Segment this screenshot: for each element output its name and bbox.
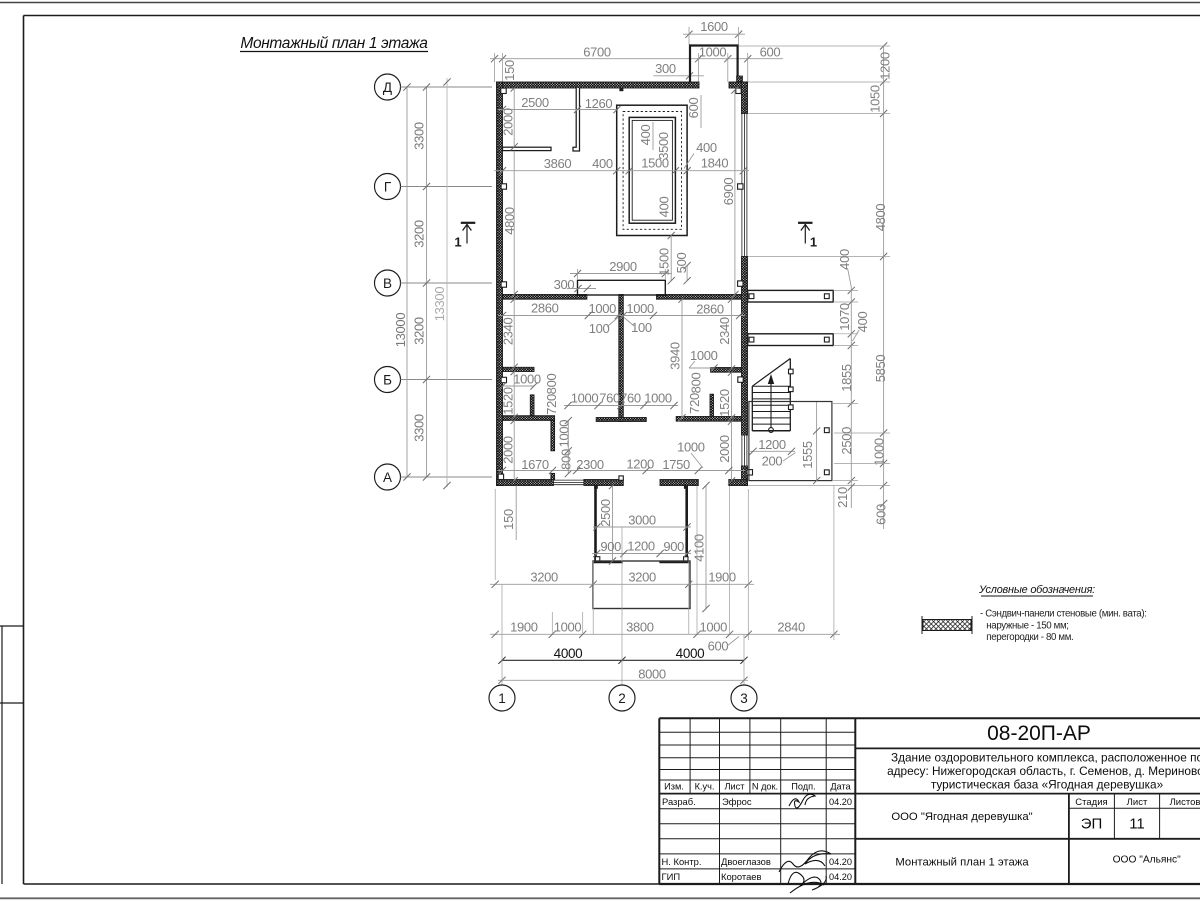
svg-text:4800: 4800 — [873, 204, 888, 232]
svg-text:400: 400 — [638, 125, 653, 146]
svg-text:1000: 1000 — [557, 420, 572, 448]
svg-text:300: 300 — [554, 277, 575, 292]
svg-text:4100: 4100 — [692, 534, 707, 562]
svg-text:Коротаев: Коротаев — [721, 871, 762, 882]
svg-text:150: 150 — [502, 60, 517, 81]
svg-text:150: 150 — [501, 509, 516, 530]
svg-text:13300: 13300 — [432, 287, 447, 322]
svg-text:08-20П-АР: 08-20П-АР — [987, 722, 1091, 745]
svg-text:наружные - 150 мм;: наружные - 150 мм; — [986, 621, 1068, 632]
svg-text:Листов: Листов — [1170, 797, 1200, 808]
svg-text:1200: 1200 — [627, 539, 655, 554]
svg-text:2900: 2900 — [609, 259, 637, 274]
svg-text:2: 2 — [618, 691, 626, 706]
svg-text:1000: 1000 — [700, 620, 728, 635]
svg-text:2300: 2300 — [576, 457, 604, 472]
svg-text:400: 400 — [855, 312, 870, 333]
svg-text:3500: 3500 — [656, 132, 671, 160]
svg-text:04.20: 04.20 — [829, 797, 852, 807]
svg-text:3860: 3860 — [544, 156, 572, 171]
svg-text:100: 100 — [589, 321, 610, 336]
svg-text:1200: 1200 — [878, 52, 893, 80]
svg-text:Разраб.: Разраб. — [662, 796, 696, 807]
svg-text:ГИП: ГИП — [662, 871, 681, 882]
svg-text:6700: 6700 — [583, 45, 611, 60]
svg-text:6900: 6900 — [721, 178, 736, 206]
svg-text:2340: 2340 — [717, 317, 732, 345]
svg-text:600: 600 — [874, 504, 889, 525]
svg-text:1555: 1555 — [800, 441, 815, 469]
svg-text:К.уч.: К.уч. — [695, 782, 715, 792]
svg-text:2500: 2500 — [598, 499, 613, 527]
svg-text:1000: 1000 — [872, 438, 887, 466]
svg-text:1200: 1200 — [758, 437, 786, 452]
svg-text:3: 3 — [740, 691, 748, 706]
svg-text:600: 600 — [686, 98, 701, 119]
svg-text:1: 1 — [498, 691, 506, 706]
svg-text:1600: 1600 — [700, 19, 728, 34]
svg-text:5850: 5850 — [873, 355, 888, 383]
svg-text:Условные обозначения:: Условные обозначения: — [978, 584, 1095, 596]
svg-text:Эфрос: Эфрос — [722, 796, 752, 807]
svg-text:1520: 1520 — [501, 387, 516, 415]
svg-text:1855: 1855 — [839, 364, 854, 392]
svg-text:2000: 2000 — [501, 436, 516, 464]
svg-text:1000: 1000 — [644, 391, 672, 406]
svg-text:1750: 1750 — [662, 457, 690, 472]
svg-text:1: 1 — [810, 235, 817, 250]
svg-text:1840: 1840 — [701, 156, 729, 171]
svg-text:2000: 2000 — [501, 108, 516, 136]
svg-text:Дата: Дата — [830, 782, 851, 792]
svg-text:Подп.: Подп. — [791, 782, 815, 792]
svg-text:1050: 1050 — [868, 85, 883, 113]
svg-text:Изм.: Изм. — [664, 782, 684, 792]
svg-text:- Сэндвич-панели стеновые (мин: - Сэндвич-панели стеновые (мин. вата): — [980, 609, 1147, 620]
svg-text:600: 600 — [708, 639, 729, 654]
svg-text:Н. Контр.: Н. Контр. — [662, 856, 702, 867]
svg-text:760: 760 — [599, 391, 620, 406]
svg-text:3300: 3300 — [412, 122, 427, 150]
svg-text:800: 800 — [544, 374, 559, 395]
svg-text:13000: 13000 — [393, 313, 408, 348]
svg-text:3200: 3200 — [628, 570, 656, 585]
svg-text:Здание оздоровительного компле: Здание оздоровительного комплекса, распо… — [891, 751, 1200, 765]
svg-text:1000: 1000 — [589, 301, 617, 316]
svg-text:11: 11 — [1129, 816, 1145, 833]
svg-text:3000: 3000 — [628, 513, 656, 528]
svg-text:Монтажный план 1 этажа: Монтажный план 1 этажа — [240, 35, 428, 52]
svg-text:Стадия: Стадия — [1075, 797, 1107, 808]
svg-text:N док.: N док. — [752, 782, 778, 792]
svg-text:800: 800 — [689, 373, 704, 394]
svg-text:2340: 2340 — [501, 318, 516, 346]
svg-text:200: 200 — [762, 454, 783, 469]
svg-text:2860: 2860 — [531, 301, 559, 316]
svg-text:1000: 1000 — [571, 391, 599, 406]
svg-text:перегородки - 80 мм.: перегородки - 80 мм. — [986, 632, 1073, 643]
svg-text:Б: Б — [383, 372, 392, 387]
svg-text:210: 210 — [835, 487, 850, 508]
svg-text:1500: 1500 — [657, 248, 672, 276]
svg-text:3200: 3200 — [412, 220, 427, 248]
svg-text:720: 720 — [544, 394, 559, 415]
svg-text:400: 400 — [696, 140, 717, 155]
svg-text:1900: 1900 — [510, 620, 538, 635]
svg-text:3200: 3200 — [412, 317, 427, 345]
svg-text:А: А — [383, 470, 392, 485]
svg-text:ООО "Альянс": ООО "Альянс" — [1113, 855, 1182, 866]
svg-text:1000: 1000 — [554, 620, 582, 635]
svg-text:4000: 4000 — [554, 646, 583, 661]
svg-text:900: 900 — [663, 539, 684, 554]
svg-text:Лист: Лист — [1127, 797, 1148, 808]
svg-text:1670: 1670 — [521, 457, 549, 472]
svg-text:2000: 2000 — [717, 435, 732, 463]
svg-text:Двоеглазов: Двоеглазов — [721, 856, 771, 867]
svg-text:2500: 2500 — [839, 427, 854, 455]
svg-text:3940: 3940 — [668, 342, 683, 370]
svg-text:2840: 2840 — [777, 620, 805, 635]
svg-text:2860: 2860 — [696, 302, 724, 317]
svg-text:Г: Г — [384, 179, 392, 194]
svg-text:720: 720 — [687, 393, 702, 414]
svg-text:800: 800 — [559, 449, 574, 470]
svg-text:3800: 3800 — [626, 620, 654, 635]
svg-text:2500: 2500 — [521, 95, 549, 110]
svg-text:04.20: 04.20 — [829, 872, 852, 882]
svg-text:1000: 1000 — [690, 348, 718, 363]
svg-text:адресу: Нижегородская область,: адресу: Нижегородская область, г. Семено… — [887, 764, 1200, 778]
svg-text:300: 300 — [655, 61, 676, 76]
svg-text:400: 400 — [837, 249, 852, 270]
svg-text:900: 900 — [600, 539, 621, 554]
svg-text:1520: 1520 — [717, 389, 732, 417]
svg-text:Лист: Лист — [725, 782, 746, 792]
svg-text:ООО "Ягодная деревушка": ООО "Ягодная деревушка" — [891, 811, 1032, 823]
svg-text:1: 1 — [454, 235, 461, 250]
svg-text:3200: 3200 — [530, 570, 558, 585]
svg-text:760: 760 — [620, 391, 641, 406]
svg-text:4000: 4000 — [676, 646, 705, 661]
svg-text:1900: 1900 — [708, 570, 736, 585]
svg-text:1200: 1200 — [626, 457, 654, 472]
svg-text:1000: 1000 — [677, 440, 705, 455]
svg-text:Монтажный план 1 этажа: Монтажный план 1 этажа — [895, 857, 1029, 869]
svg-text:600: 600 — [760, 45, 781, 60]
svg-text:1000: 1000 — [699, 45, 727, 60]
svg-text:400: 400 — [592, 156, 613, 171]
svg-text:туристическая база «Ягодная де: туристическая база «Ягодная деревушка» — [931, 778, 1164, 792]
svg-text:400: 400 — [657, 197, 672, 218]
svg-text:ЭП: ЭП — [1081, 816, 1103, 833]
svg-text:3300: 3300 — [412, 414, 427, 442]
svg-text:1000: 1000 — [626, 301, 654, 316]
svg-text:Д: Д — [383, 80, 392, 95]
svg-text:8000: 8000 — [638, 667, 666, 682]
svg-text:1000: 1000 — [513, 372, 541, 387]
svg-text:1260: 1260 — [585, 96, 613, 111]
svg-text:4800: 4800 — [502, 207, 517, 235]
svg-text:500: 500 — [674, 253, 689, 274]
svg-text:1070: 1070 — [837, 303, 852, 331]
svg-text:04.20: 04.20 — [829, 857, 852, 867]
svg-text:В: В — [383, 276, 392, 291]
svg-text:100: 100 — [631, 320, 652, 335]
